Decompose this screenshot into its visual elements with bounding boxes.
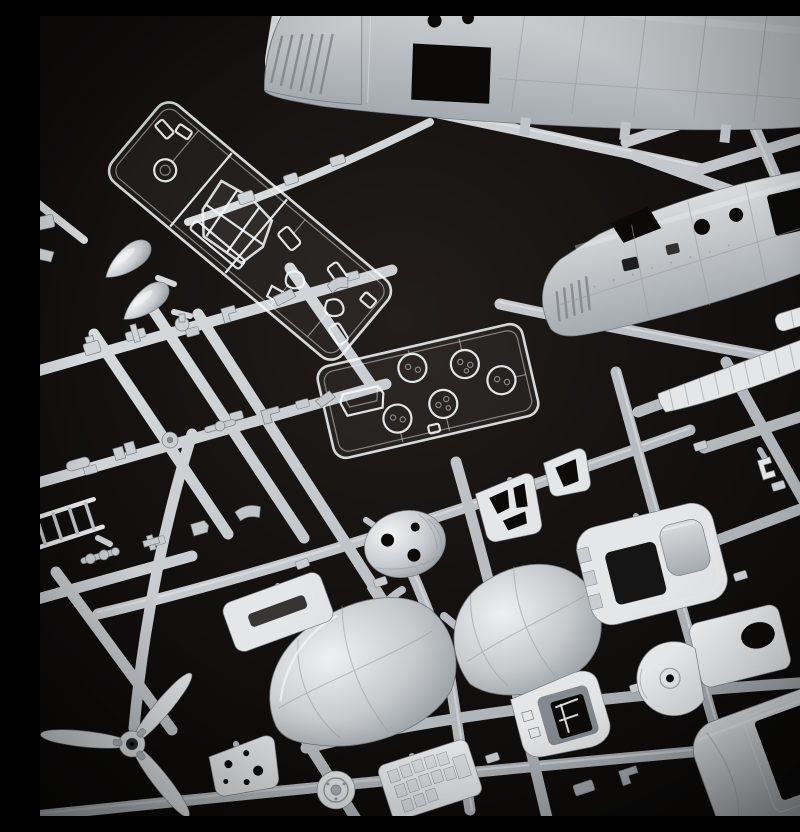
junction-boss-large: [317, 771, 355, 809]
door-opening: [407, 40, 495, 108]
model-kit-sprues-photo: Close-up studio photo of an injection-mo…: [40, 16, 800, 816]
sprue-photo-illustration: [40, 16, 800, 816]
